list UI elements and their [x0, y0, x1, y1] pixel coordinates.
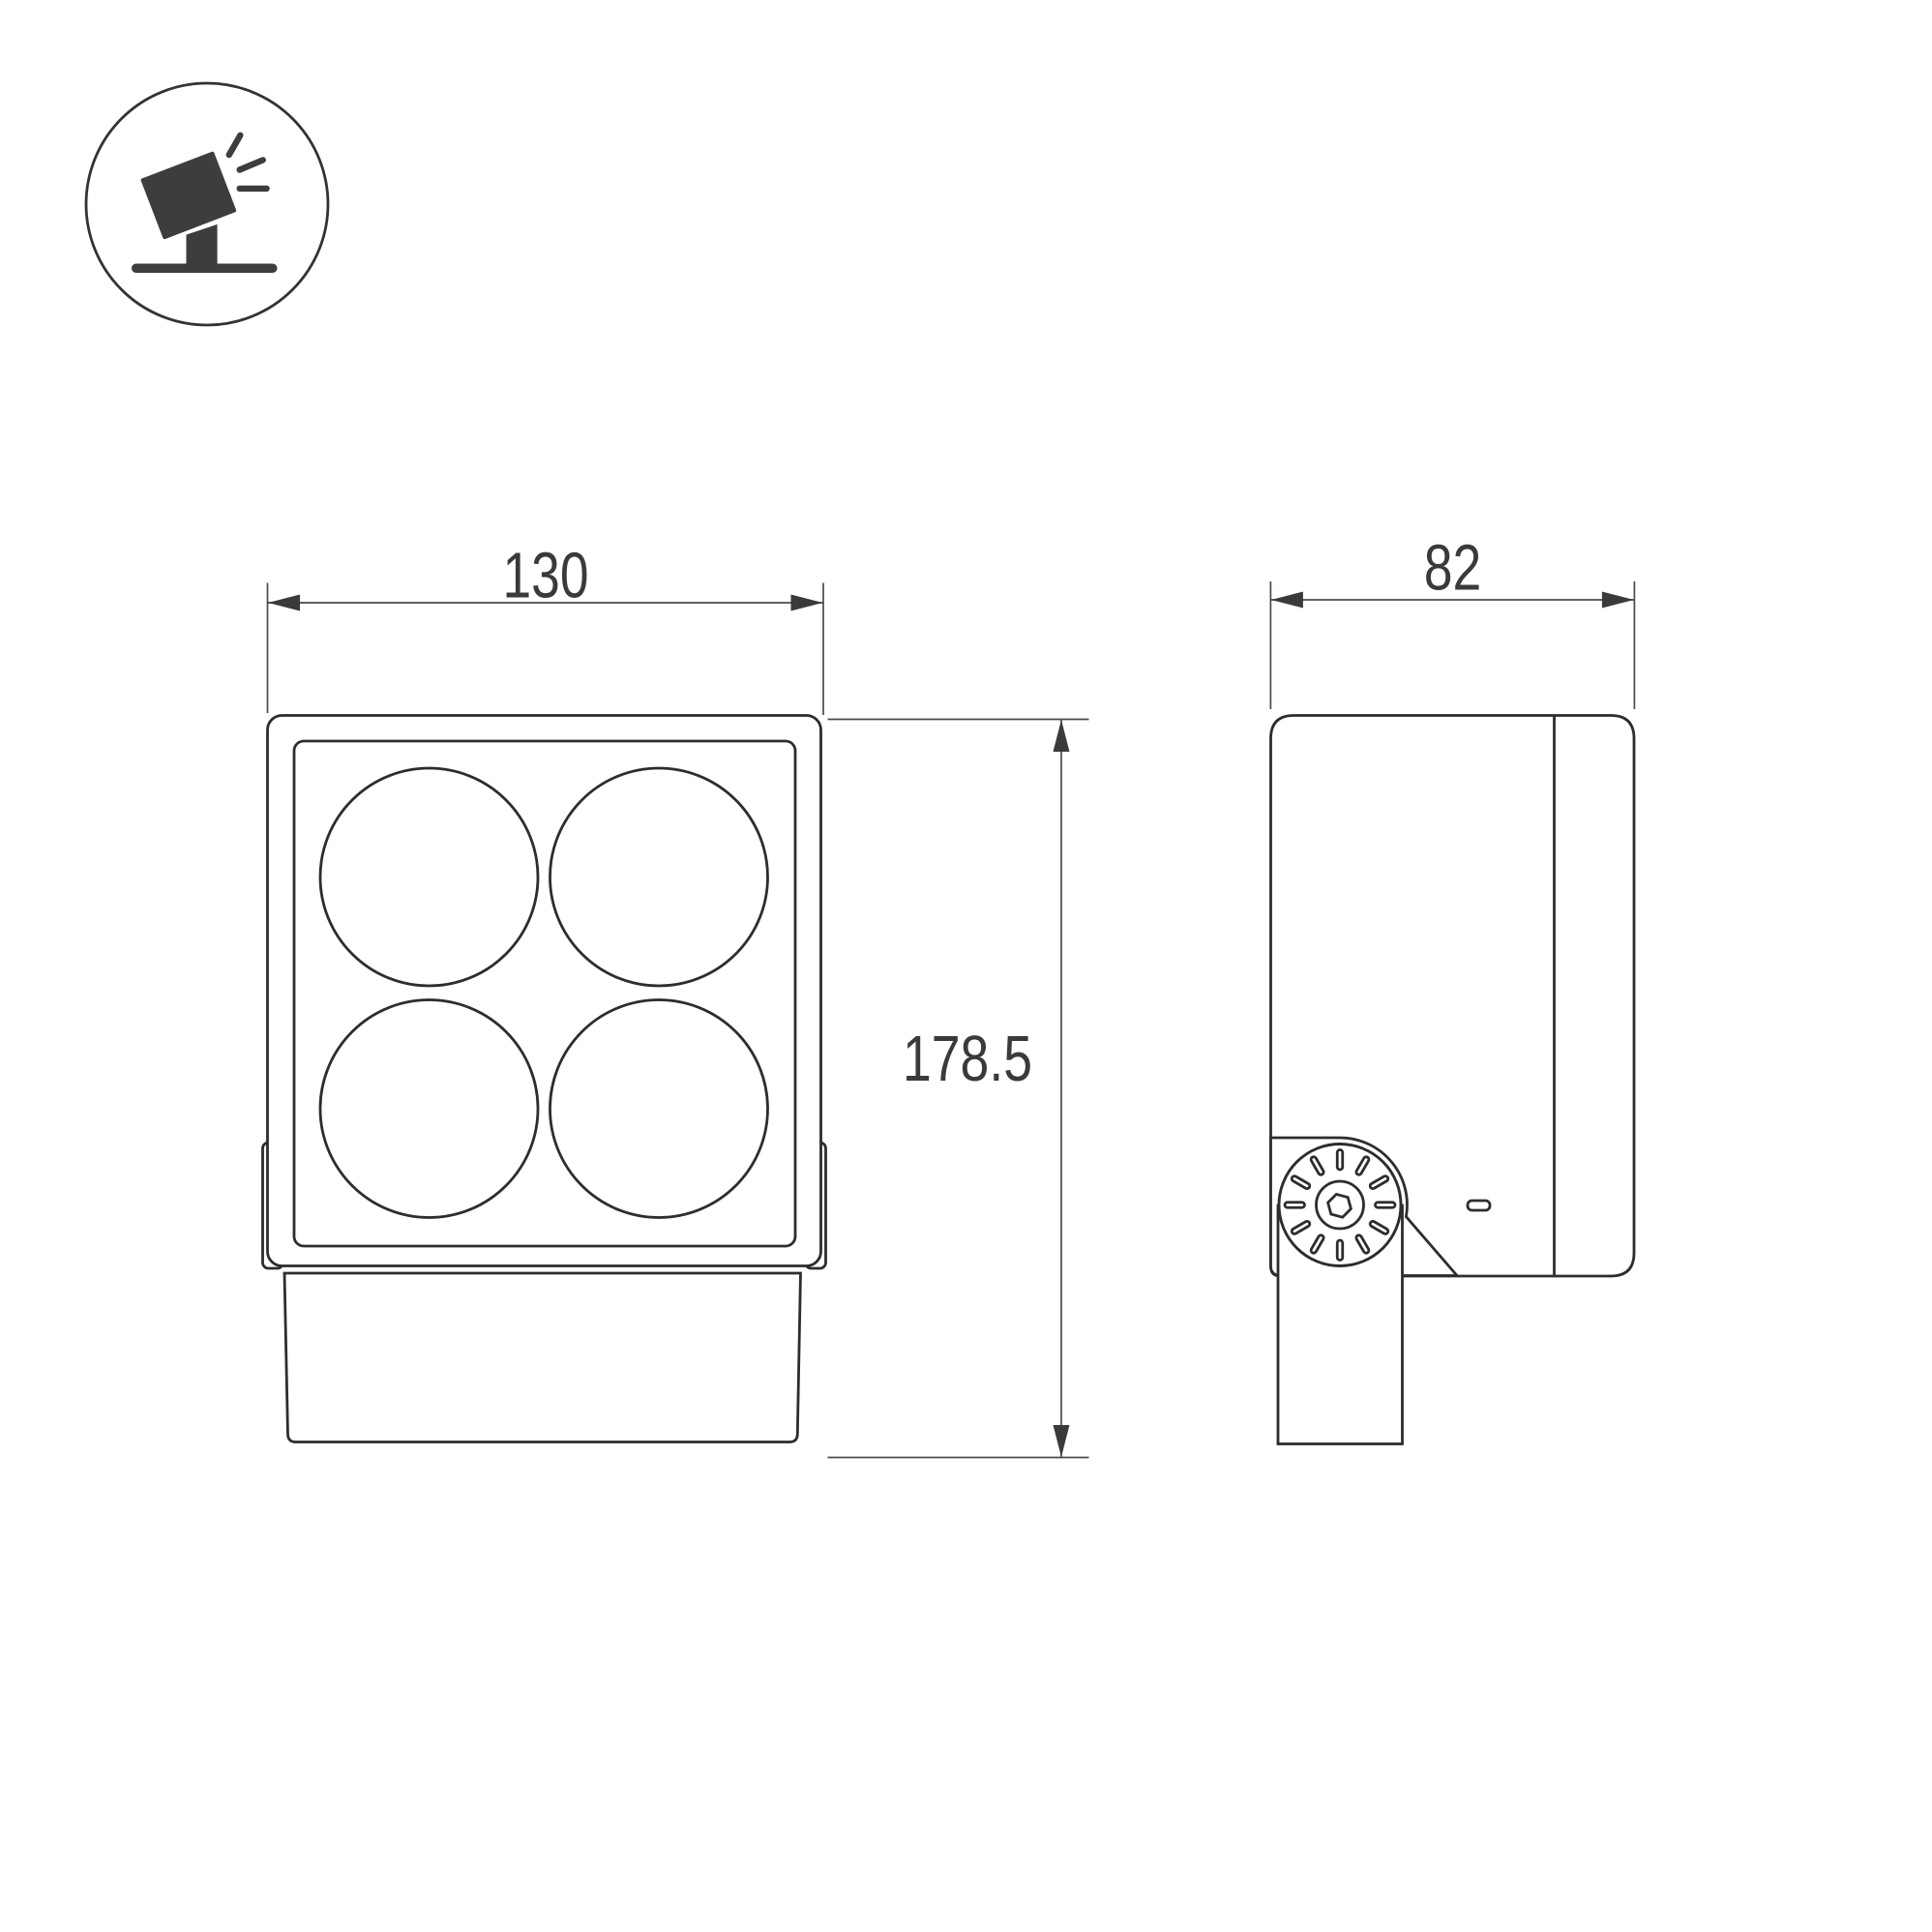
svg-text:178.5: 178.5 [903, 1023, 1032, 1095]
svg-text:130: 130 [503, 540, 589, 612]
svg-text:82: 82 [1424, 532, 1482, 605]
